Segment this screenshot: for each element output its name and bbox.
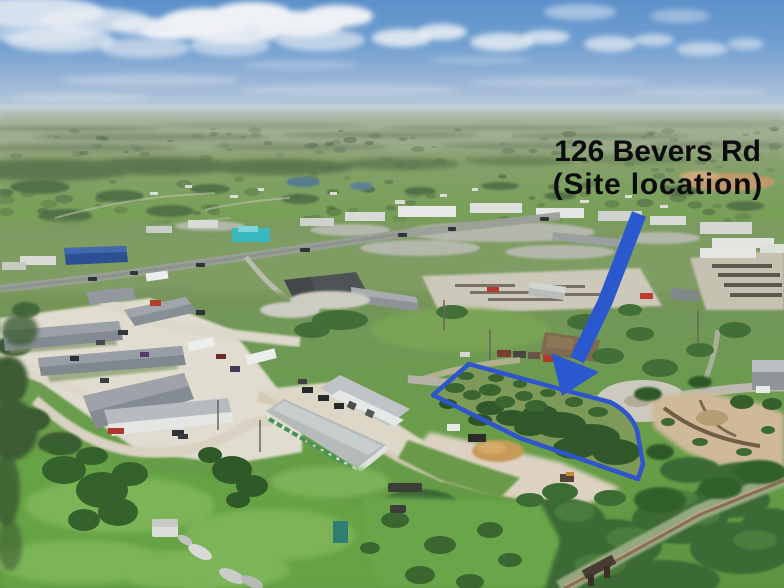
svg-text:(Site location): (Site location) bbox=[553, 168, 763, 201]
svg-text:126 Bevers Rd: 126 Bevers Rd bbox=[554, 135, 761, 168]
